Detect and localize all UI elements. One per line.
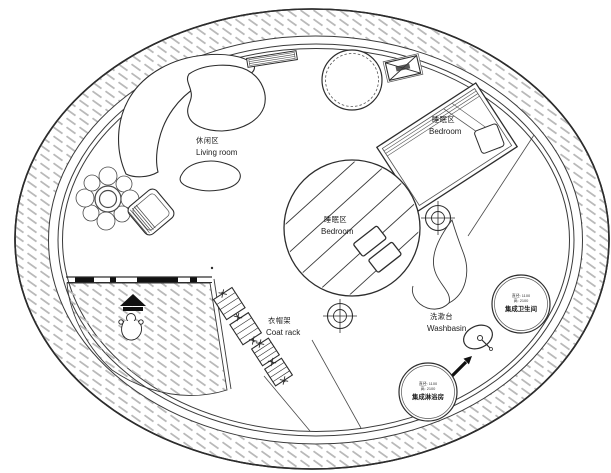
floor-dot <box>211 267 213 269</box>
plant-pot <box>100 191 117 208</box>
bathroom-pod-name: 集成卫生间 <box>504 304 537 313</box>
floor-plan: 直径: 1100 高: 2100 集成卫生间 直径: 1100 高: 2100 … <box>0 0 611 473</box>
bedroom-center-label-en: Bedroom <box>321 227 354 236</box>
shower-pod-height: 高: 2100 <box>421 386 437 391</box>
coat-rack-label-zh: 衣帽架 <box>268 316 291 325</box>
bedroom-upper-label-zh: 睡眠区 <box>432 115 455 124</box>
living-room-label-zh: 休闲区 <box>196 136 219 145</box>
door-panel <box>110 278 116 283</box>
washbasin-label-zh: 洗漱台 <box>430 312 453 321</box>
shower-pod: 直径: 1100 高: 2100 集成淋浴房 <box>399 363 457 421</box>
round-table <box>322 50 382 110</box>
door-panel <box>75 278 94 283</box>
washbasin-label-en: Washbasin <box>427 324 466 333</box>
sofa-chaise <box>187 65 265 131</box>
bathroom-pod-height: 高: 2100 <box>514 298 530 303</box>
living-room-label-en: Living room <box>196 148 238 157</box>
door-panel <box>190 278 197 283</box>
door-panel <box>137 278 178 283</box>
coat-rack-label-en: Coat rack <box>266 328 301 337</box>
bedroom-upper-label-en: Bedroom <box>429 127 462 136</box>
bedroom-center-label-zh: 睡眠区 <box>324 215 347 224</box>
floor-plan-svg: 直径: 1100 高: 2100 集成卫生间 直径: 1100 高: 2100 … <box>0 0 611 473</box>
shower-pod-name: 集成淋浴房 <box>411 392 445 401</box>
bathroom-pod: 直径: 1100 高: 2100 集成卫生间 <box>492 275 550 333</box>
